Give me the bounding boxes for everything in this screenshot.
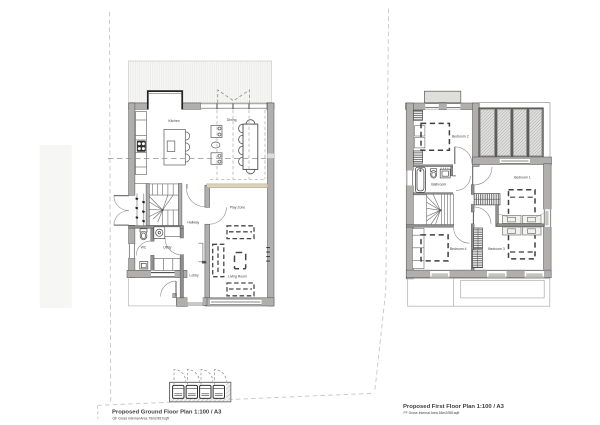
svg-text:Proposed Ground Floor Plan 1:1: Proposed Ground Floor Plan 1:100 / A3: [112, 410, 222, 416]
svg-text:Bedroom 1: Bedroom 1: [514, 176, 531, 180]
svg-text:FF Gross Internal Area 54m2/58: FF Gross Internal Area 54m2/581sqft: [404, 411, 460, 415]
svg-text:Proposed First Floor Plan 1:10: Proposed First Floor Plan 1:100 / A3: [403, 404, 505, 410]
svg-text:Utility: Utility: [163, 246, 172, 250]
svg-text:Kitchen: Kitchen: [168, 119, 179, 123]
svg-text:Lobby: Lobby: [189, 274, 199, 278]
svg-text:Bedroom 2: Bedroom 2: [452, 134, 469, 138]
svg-text:WC: WC: [141, 246, 147, 250]
svg-text:Living Room: Living Room: [228, 275, 247, 279]
svg-text:GF Gross Internal Area 76m2/81: GF Gross Internal Area 76m2/817sqft: [113, 417, 169, 421]
svg-text:Bathroom: Bathroom: [431, 183, 446, 187]
svg-text:Hallway: Hallway: [187, 221, 199, 225]
svg-text:Bedroom 4: Bedroom 4: [450, 247, 467, 251]
svg-text:Play Zone: Play Zone: [230, 206, 245, 210]
svg-text:Bedroom 3: Bedroom 3: [488, 247, 505, 251]
svg-text:Dining: Dining: [227, 118, 237, 122]
